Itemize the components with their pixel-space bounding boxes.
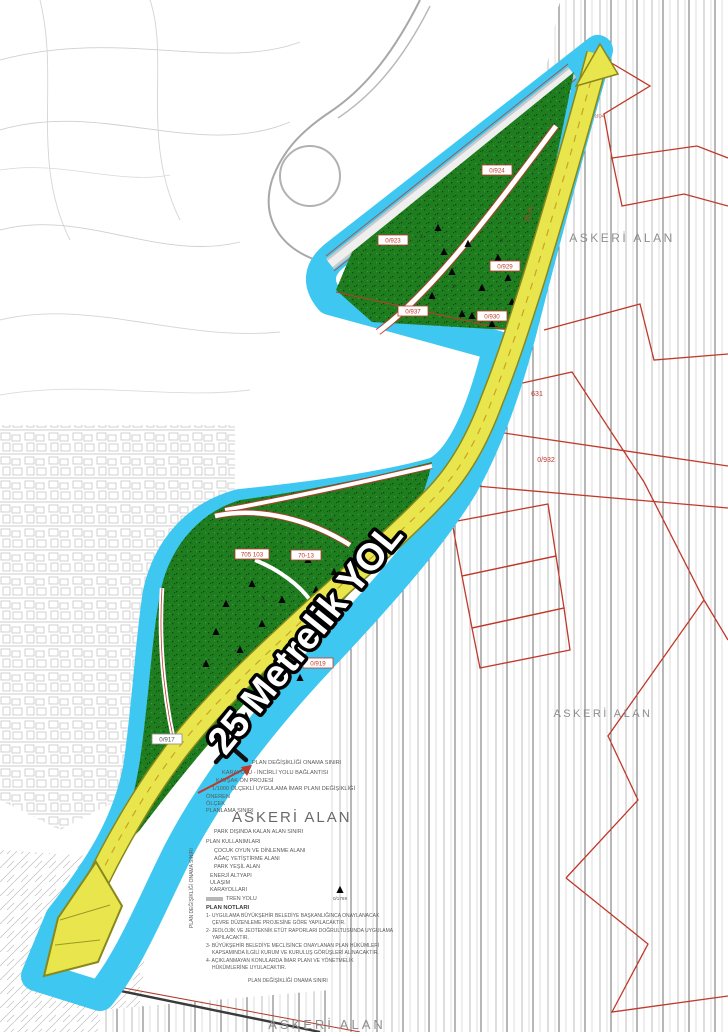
railway-legend-symbol [206,898,223,900]
legend-note-line: 4- AÇIKLANMAYAN KONULARDA İMAR PLANI VE … [206,957,354,964]
legend-note-line: 3- BÜYÜKŞEHİR BELEDİYE MECLİSİNCE ONAYLA… [206,942,379,949]
military-area-label-ne: ASKERİ ALAN [569,231,675,245]
plan-map-page: xxx [0,0,728,1032]
parcel-label-text: 70-13 [298,553,314,560]
parcel-label-text: 0/917 [159,737,175,744]
parcel-label-text: 0/932 [537,457,555,464]
legend-item: PARK YEŞİL ALAN [214,863,260,870]
parcel-label: 0/937 [398,306,428,316]
parcel-label: 0/924 [482,165,512,175]
parcel-label-text: 0/937 [405,309,421,316]
svg-text:x: x [330,518,333,524]
svg-text:x: x [452,284,455,290]
svg-text:x: x [300,540,303,546]
military-area-label-e: ASKERİ ALAN [553,707,652,720]
parcel-label: 0/923 [378,235,408,245]
legend-item: ULAŞIM [210,880,231,886]
legend-item: KARAYOLLARI [210,887,247,893]
parcel-label: 0/917 [152,734,182,744]
legend-line: KAVŞAK ÖN PROJESİ [216,777,274,784]
svg-text:x: x [500,238,503,244]
legend-note-line: HÜKÜMLERİNE UYULACAKTIR. [212,964,286,971]
legend-note-line: YAPILACAKTIR. [212,935,249,941]
military-area-label-s: ASKERİ ALAN [268,1017,386,1032]
parcel-label-text: 0/923 [385,238,401,245]
legend-note-line: ÇEVRE DÜZENLEME PROJESİNE GÖRE YAPILACAK… [212,919,345,926]
legend-side-label: PLAN DEĞİŞİKLİĞİ ONAMA SINIRI [188,848,195,928]
legend-item: ÇOCUK OYUN VE DİNLENME ALANI [214,847,305,854]
parcel-label-text: 0/929 [497,264,513,271]
legend-notes-title: PLAN NOTLARI [206,905,250,911]
parcel-label-text: 0/930 [484,314,500,321]
legend-line: KARAYOLU - İNCİRLİ YOLU BAĞLANTISI [222,769,329,776]
elevation-point-label: 0/1769 [333,896,347,901]
legend-big-label: ASKERİ ALAN [232,808,352,826]
background-topography [0,0,430,395]
legend-note-line: 2- JEOLOJİK VE JEOTEKNİK ETÜT RAPORLARI … [206,927,394,934]
legend-item: TREN YOLU [226,896,257,902]
svg-text:x: x [420,234,423,240]
plan-map-canvas: xxx [0,0,728,1032]
legend-item: PLAN KULLANIMLARI [206,839,261,845]
parcel-label-text: 0/924 [489,168,505,175]
legend-line: ÖLÇEK [206,800,225,807]
parcel-label: 705 103 [235,549,269,559]
parcel-label-text: 804 [595,114,606,120]
legend-line: 1/1000 ÖLÇEKLİ UYGULAMA İMAR PLANI DEĞİŞ… [212,785,355,792]
legend-line: ÖNEREN [206,793,230,800]
legend-item: ENERJİ ALTYAPI [210,872,252,879]
parcel-label: 0/930 [477,311,507,321]
legend-line: PLAN DEĞİŞİKLİĞİ ONAMA SINIRI [252,759,342,766]
legend-note-line: 1- UYGULAMA BÜYÜKŞEHİR BELEDİYE BAŞKANLI… [206,912,380,919]
legend-footer: PLAN DEĞİŞİKLİĞİ ONAMA SINIRI [248,977,328,984]
legend-item: AĞAÇ YETİŞTİRME ALANI [214,855,280,862]
parcel-label-text: 705 103 [241,552,264,559]
parcel-label: 70-13 [291,550,321,560]
legend-item: PARK DIŞINDA KALAN ALAN SINIRI [214,829,303,835]
parcel-label-text: 631 [531,391,543,398]
svg-text:x: x [262,596,265,602]
legend-note-line: KAPSAMINDA İLGİLİ KURUM VE KURULUŞ GÖRÜŞ… [212,949,379,956]
parcel-label: 0/929 [490,261,520,271]
